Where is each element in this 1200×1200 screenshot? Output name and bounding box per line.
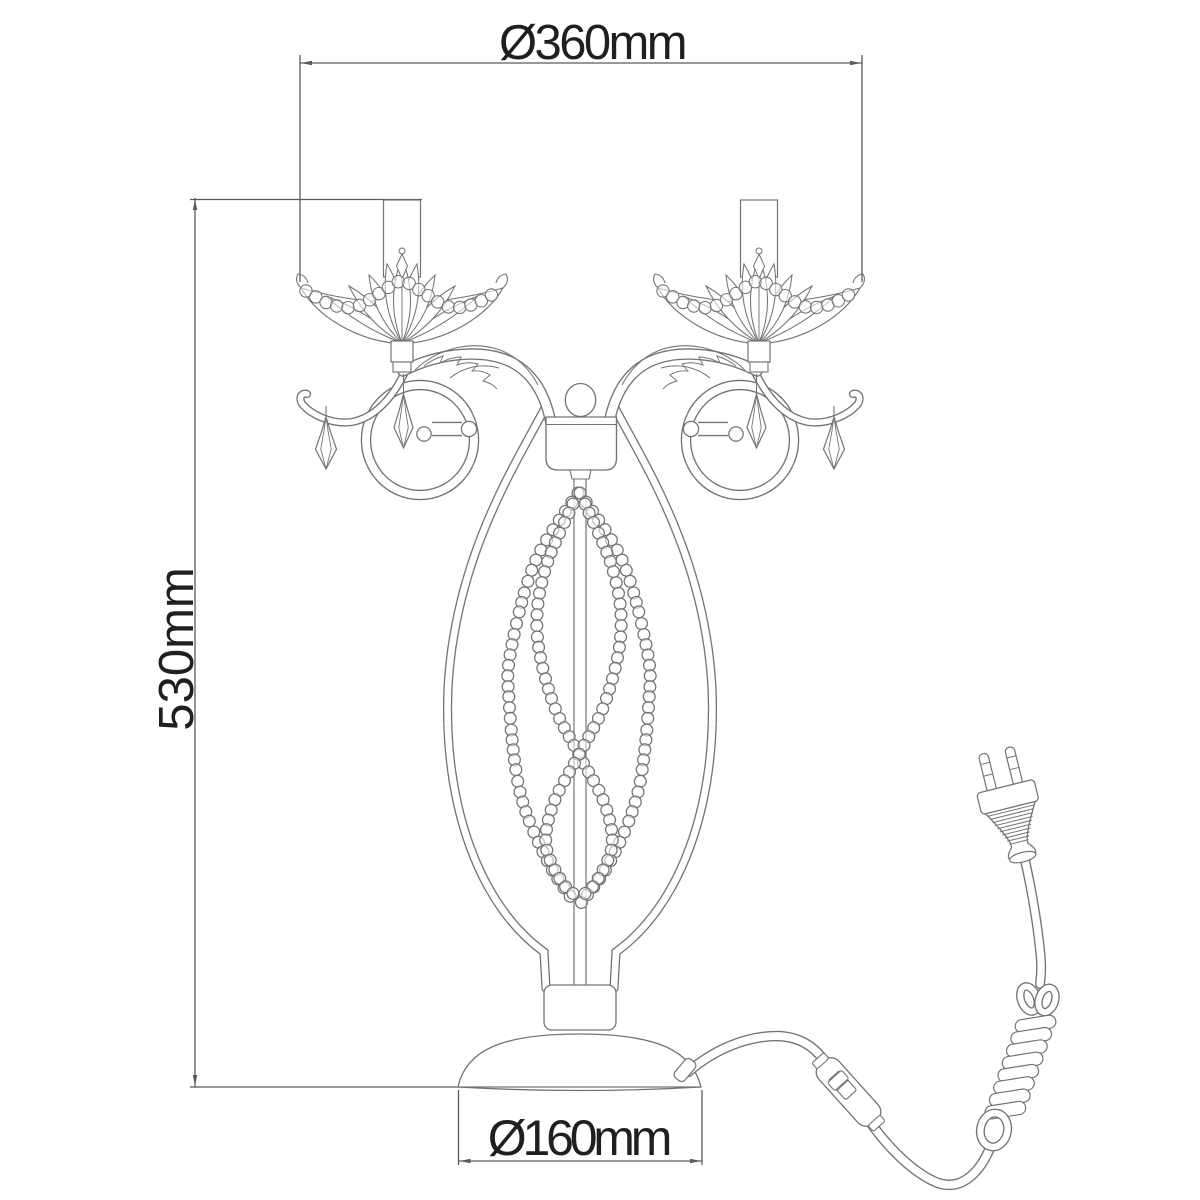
- svg-text:Ø160mm: Ø160mm: [488, 1110, 670, 1166]
- svg-text:Ø360mm: Ø360mm: [499, 16, 685, 70]
- svg-text:530mm: 530mm: [150, 567, 204, 730]
